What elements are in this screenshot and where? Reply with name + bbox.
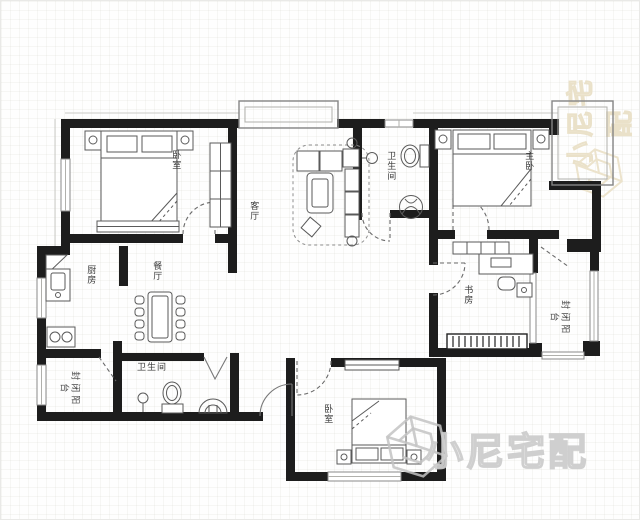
bedroom1-furniture — [85, 131, 231, 232]
floorplan-canvas: 小尼宅配 — [0, 0, 640, 520]
room-label-living: 客厅 — [248, 201, 259, 221]
kitchen-furniture — [46, 255, 75, 347]
dining-furniture — [135, 292, 185, 342]
room-label-bedroom2: 卧室 — [322, 404, 333, 424]
living-room-furniture — [293, 138, 369, 246]
room-label-dining: 餐厅 — [151, 261, 162, 281]
room-label-balcony-west: 封闭阳台 — [58, 367, 81, 411]
room-label-kitchen: 厨房 — [85, 265, 96, 285]
room-label-master: 主卧 — [523, 151, 534, 171]
bathroom2-fixtures — [138, 382, 227, 413]
room-label-bath2: 卫生间 — [137, 362, 167, 373]
study-furniture — [447, 242, 533, 349]
room-label-bedroom1: 卧室 — [170, 150, 181, 170]
room-label-study: 书房 — [462, 285, 473, 305]
room-label-bath1: 卫生间 — [385, 151, 396, 181]
room-label-balcony-east: 封闭阳台 — [548, 296, 571, 340]
watermark-brand-bottom: 小尼宅配 — [425, 421, 589, 476]
bay-windows — [239, 101, 613, 185]
